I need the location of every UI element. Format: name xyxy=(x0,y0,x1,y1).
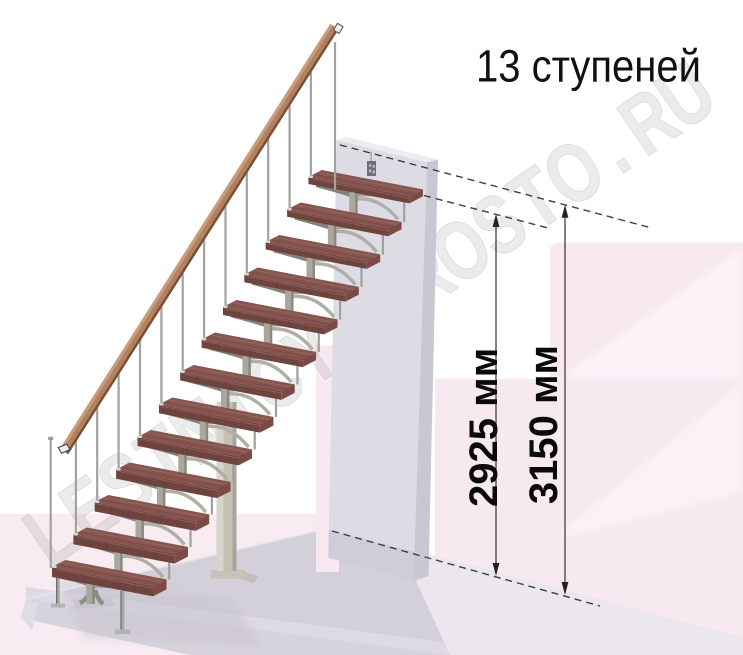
svg-text:13 ступеней: 13 ступеней xyxy=(476,40,701,91)
svg-text:3150 мм: 3150 мм xyxy=(522,345,566,504)
svg-text:2925 мм: 2925 мм xyxy=(462,348,506,507)
